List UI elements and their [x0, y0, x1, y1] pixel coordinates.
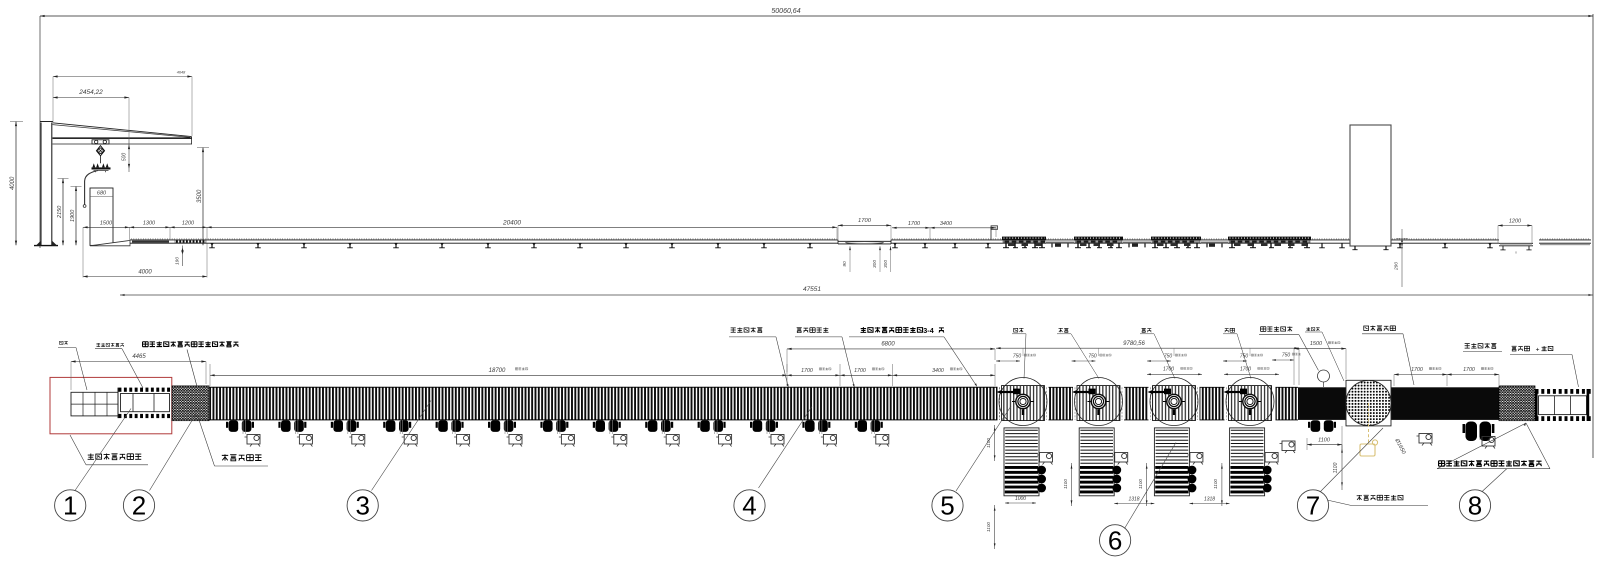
svg-text:4465: 4465 [132, 354, 146, 360]
svg-text:1700: 1700 [801, 368, 813, 374]
svg-text:1700: 1700 [1163, 367, 1174, 373]
svg-text:4000: 4000 [138, 270, 152, 276]
svg-text:18700: 18700 [489, 368, 506, 374]
svg-text:750: 750 [1282, 352, 1291, 358]
svg-text:300: 300 [883, 260, 889, 268]
svg-text:3400: 3400 [940, 221, 953, 227]
svg-text:6: 6 [1108, 525, 1122, 555]
svg-text:1200: 1200 [182, 221, 195, 227]
svg-text:4: 4 [742, 490, 756, 520]
svg-text:750: 750 [1164, 353, 1173, 359]
svg-text:1000: 1000 [1015, 496, 1026, 502]
svg-text:1100: 1100 [986, 522, 991, 532]
svg-text:500: 500 [122, 153, 128, 162]
svg-text:2150: 2150 [57, 205, 63, 219]
svg-text:6800: 6800 [881, 341, 895, 347]
svg-text:20400: 20400 [502, 219, 521, 226]
svg-text:3: 3 [355, 490, 369, 520]
svg-text:3500: 3500 [197, 189, 203, 203]
svg-text:1700: 1700 [1240, 367, 1251, 373]
svg-text:1100: 1100 [1213, 479, 1218, 489]
svg-text:1700: 1700 [858, 218, 872, 224]
svg-text:290: 290 [1394, 262, 1400, 271]
svg-text:47551: 47551 [803, 286, 821, 293]
svg-text:2: 2 [132, 490, 146, 520]
svg-text:190: 190 [175, 257, 181, 265]
svg-text:750: 750 [1088, 353, 1097, 359]
svg-text:1500: 1500 [100, 221, 113, 227]
svg-text:1: 1 [63, 490, 77, 520]
svg-text:3400: 3400 [932, 368, 944, 374]
svg-text:4000: 4000 [10, 176, 16, 190]
svg-text:1900: 1900 [70, 209, 76, 222]
svg-text:1100: 1100 [1063, 479, 1068, 489]
svg-text:1100: 1100 [1138, 479, 1143, 489]
svg-text:50060,64: 50060,64 [771, 8, 800, 15]
svg-text:5: 5 [940, 490, 954, 520]
svg-text:9780,56: 9780,56 [1123, 341, 1145, 347]
svg-text:1500: 1500 [1310, 341, 1323, 347]
svg-text:4648: 4648 [177, 71, 186, 75]
svg-text:1700: 1700 [908, 221, 921, 227]
svg-text:300: 300 [872, 260, 878, 268]
svg-text:1700: 1700 [854, 368, 866, 374]
svg-text:1100: 1100 [1318, 437, 1331, 443]
svg-text:1700: 1700 [1463, 367, 1475, 373]
svg-text:1700: 1700 [1411, 367, 1423, 373]
svg-text:750: 750 [1013, 353, 1022, 359]
svg-text:1100: 1100 [986, 438, 991, 448]
svg-text:680: 680 [97, 191, 107, 197]
svg-text:7: 7 [1306, 490, 1320, 520]
svg-text:90: 90 [842, 261, 848, 267]
svg-text:2454,22: 2454,22 [78, 89, 103, 96]
svg-text:3-4: 3-4 [923, 326, 933, 335]
svg-text:1318: 1318 [1128, 497, 1139, 503]
svg-text:1100: 1100 [1333, 462, 1339, 473]
svg-text:+: + [1536, 347, 1540, 354]
svg-text:8: 8 [1468, 490, 1482, 520]
svg-text:x: x [1515, 251, 1517, 255]
svg-text:1300: 1300 [143, 221, 156, 227]
svg-text:1318: 1318 [1204, 497, 1215, 503]
svg-text:1200: 1200 [1509, 218, 1522, 224]
